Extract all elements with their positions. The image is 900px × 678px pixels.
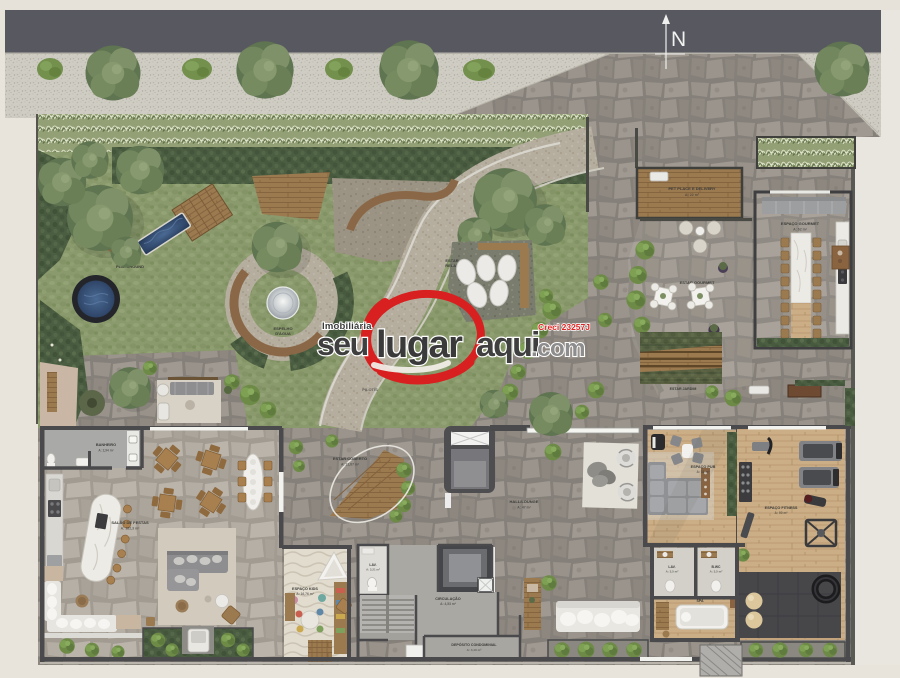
svg-text:BANHEIRO: BANHEIRO bbox=[96, 443, 116, 447]
svg-text:aqui: aqui bbox=[476, 326, 539, 364]
svg-text:ESPAÇO FITNESS: ESPAÇO FITNESS bbox=[765, 506, 798, 510]
svg-text:PET PLACE E DELIVERY: PET PLACE E DELIVERY bbox=[668, 186, 716, 191]
svg-text:A: 47 m²: A: 47 m² bbox=[517, 506, 531, 510]
svg-text:A: 90 m²: A: 90 m² bbox=[774, 511, 788, 515]
svg-text:A: 21,87 m²: A: 21,87 m² bbox=[341, 463, 360, 467]
svg-text:D'ÁGUA: D'ÁGUA bbox=[275, 331, 291, 336]
svg-text:.com: .com bbox=[531, 335, 585, 362]
svg-text:seu: seu bbox=[317, 326, 368, 362]
svg-text:A: 3,5 m²: A: 3,5 m² bbox=[666, 570, 679, 574]
svg-text:ESTAR JARDIM: ESTAR JARDIM bbox=[670, 387, 697, 391]
svg-text:SALÃO DE FESTAS: SALÃO DE FESTAS bbox=[111, 520, 149, 525]
svg-text:SPA: SPA bbox=[696, 599, 704, 603]
svg-text:ESTAR COBERTO: ESTAR COBERTO bbox=[333, 456, 367, 461]
svg-text:LAV.: LAV. bbox=[369, 563, 376, 567]
svg-text:ESPAÇO KIDS: ESPAÇO KIDS bbox=[292, 587, 318, 591]
svg-text:A: 4,53 m²: A: 4,53 m² bbox=[440, 602, 457, 606]
svg-text:N: N bbox=[671, 28, 686, 51]
svg-text:DEPÓSITO CONDOMINIAL: DEPÓSITO CONDOMINIAL bbox=[451, 642, 497, 647]
svg-text:A: 3,21 m²: A: 3,21 m² bbox=[366, 568, 380, 572]
svg-text:lugar: lugar bbox=[376, 324, 463, 366]
svg-text:ESPAÇO GOURMET: ESPAÇO GOURMET bbox=[781, 221, 820, 226]
svg-text:A: 4,10 m²: A: 4,10 m² bbox=[467, 648, 482, 652]
svg-text:A: 3,5 m²: A: 3,5 m² bbox=[710, 570, 723, 574]
svg-text:LAV.: LAV. bbox=[668, 565, 675, 569]
svg-text:HALL/LOUNGE: HALL/LOUNGE bbox=[510, 499, 539, 504]
svg-text:B.WC: B.WC bbox=[711, 565, 721, 569]
svg-text:A: 182,3 m²: A: 182,3 m² bbox=[121, 527, 141, 531]
svg-text:PILOTIS: PILOTIS bbox=[362, 387, 378, 392]
svg-text:A: 16,76 m²: A: 16,76 m² bbox=[296, 592, 314, 596]
svg-text:A: 2,94 m²: A: 2,94 m² bbox=[98, 449, 113, 453]
svg-text:A: 62 m²: A: 62 m² bbox=[793, 228, 808, 232]
svg-text:CIRCULAÇÃO: CIRCULAÇÃO bbox=[435, 596, 461, 601]
svg-text:Creci 23257J: Creci 23257J bbox=[538, 322, 590, 332]
svg-text:A: 22 m²: A: 22 m² bbox=[685, 193, 700, 197]
